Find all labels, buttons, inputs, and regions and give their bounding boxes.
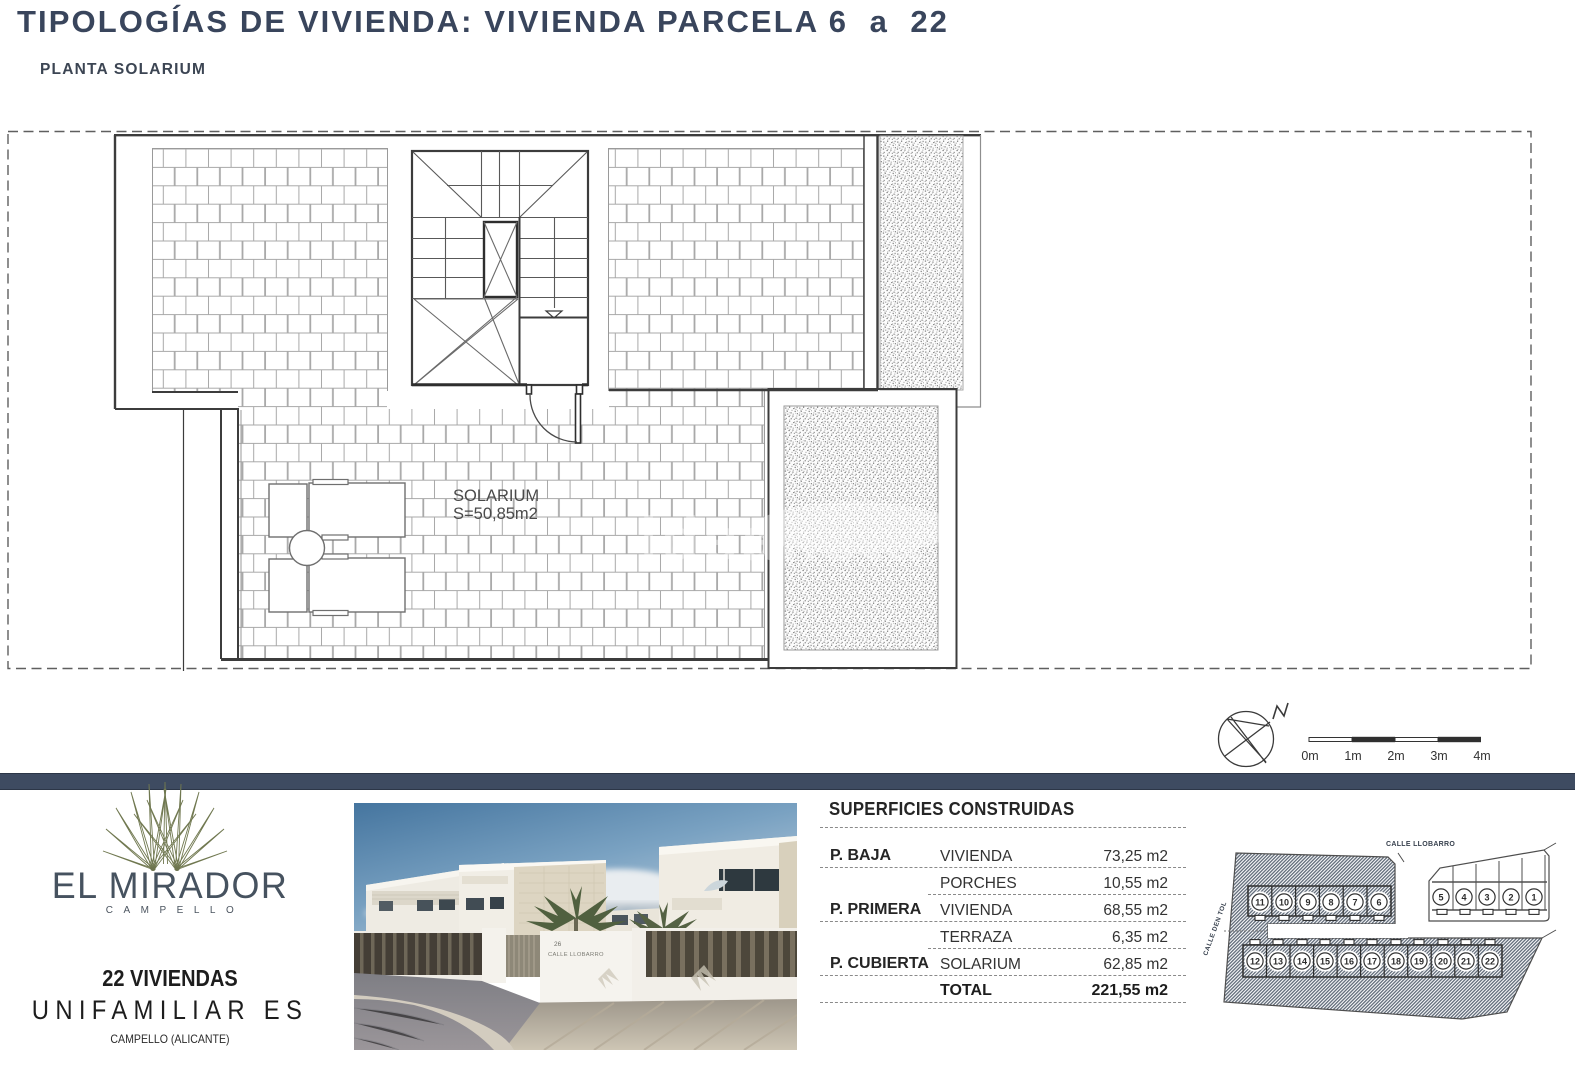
svg-text:4: 4: [1461, 893, 1466, 903]
svg-text:10: 10: [1279, 898, 1289, 908]
svg-text:CALLE LLOBARRO: CALLE LLOBARRO: [548, 952, 604, 958]
svg-text:9: 9: [1305, 898, 1310, 908]
svg-text:19: 19: [1414, 957, 1424, 967]
svg-text:CALLE LLOBARRO: CALLE LLOBARRO: [1386, 841, 1455, 848]
svg-text:5: 5: [1438, 893, 1443, 903]
svg-text:4m: 4m: [1473, 749, 1490, 763]
svg-text:13: 13: [1273, 957, 1283, 967]
svg-text:idealista: idealista: [640, 505, 924, 574]
svg-text:1: 1: [1531, 893, 1536, 903]
svg-text:12: 12: [1250, 957, 1260, 967]
svg-text:0m: 0m: [1301, 749, 1318, 763]
svg-text:S=50,85m2: S=50,85m2: [453, 505, 538, 523]
svg-text:11: 11: [1255, 898, 1265, 908]
svg-text:18: 18: [1391, 957, 1401, 967]
svg-text:3: 3: [1484, 893, 1489, 903]
svg-text:8: 8: [1328, 898, 1333, 908]
svg-text:6: 6: [1376, 898, 1381, 908]
svg-text:CALLE DEN TOL: CALLE DEN TOL: [1202, 901, 1228, 957]
svg-text:SOLARIUM: SOLARIUM: [453, 487, 539, 505]
svg-text:2: 2: [1508, 893, 1513, 903]
svg-text:26: 26: [554, 941, 562, 948]
svg-text:20: 20: [1438, 957, 1448, 967]
svg-text:14: 14: [1297, 957, 1307, 967]
svg-text:15: 15: [1320, 957, 1330, 967]
svg-text:21: 21: [1461, 957, 1471, 967]
svg-text:1m: 1m: [1344, 749, 1361, 763]
svg-text:7: 7: [1352, 898, 1357, 908]
svg-text:16: 16: [1344, 957, 1354, 967]
svg-text:3m: 3m: [1430, 749, 1447, 763]
svg-text:17: 17: [1367, 957, 1377, 967]
svg-text:2m: 2m: [1387, 749, 1404, 763]
svg-text:22: 22: [1485, 957, 1495, 967]
